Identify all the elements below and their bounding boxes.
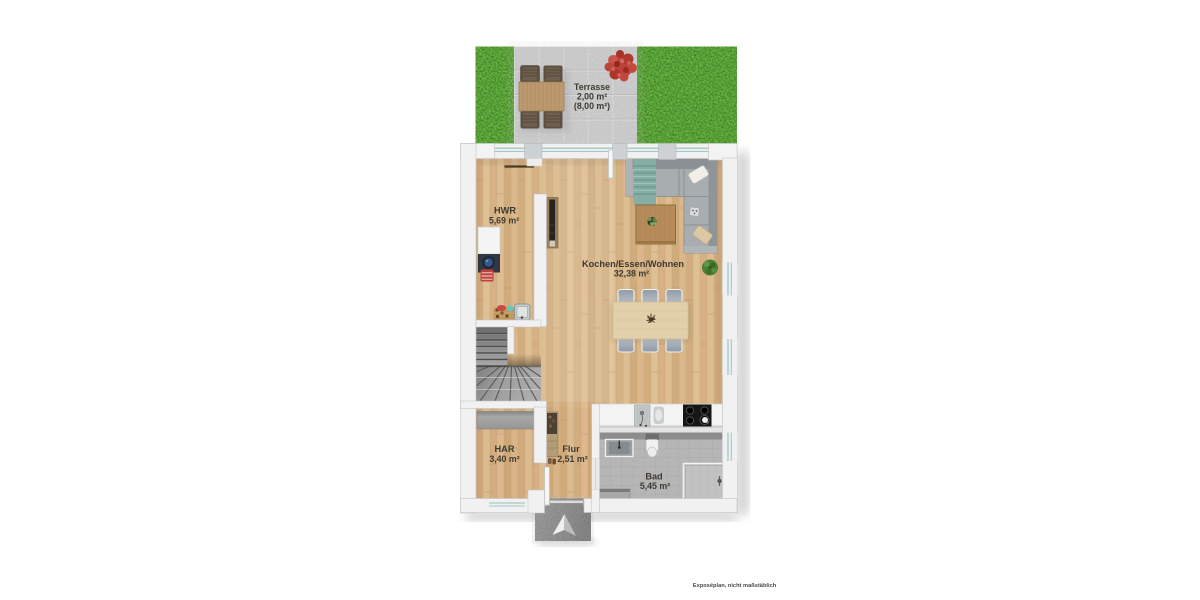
svg-text:Flur: Flur [562,444,580,454]
svg-text:HAR: HAR [495,444,515,454]
svg-text:(8,00 m²): (8,00 m²) [574,101,610,111]
svg-text:2,00 m²: 2,00 m² [577,92,607,102]
svg-text:HWR: HWR [494,206,516,216]
svg-text:2,51 m²: 2,51 m² [557,454,587,464]
svg-text:Terrasse: Terrasse [574,82,610,92]
svg-text:5,69 m²: 5,69 m² [489,215,519,225]
svg-text:32,38 m²: 32,38 m² [614,269,649,279]
svg-text:3,40 m²: 3,40 m² [489,454,519,464]
svg-text:5,45 m²: 5,45 m² [640,481,670,491]
svg-text:Kochen/Essen/Wohnen: Kochen/Essen/Wohnen [582,259,684,269]
svg-text:Exposéplan, nicht maßstäblich: Exposéplan, nicht maßstäblich [693,583,777,589]
